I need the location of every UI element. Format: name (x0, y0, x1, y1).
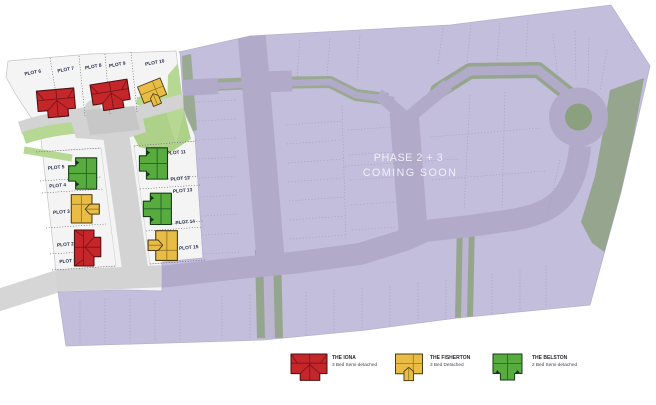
svg-text:3 Bed Detached: 3 Bed Detached (430, 362, 464, 367)
svg-text:PHASE 2 + 3: PHASE 2 + 3 (374, 152, 443, 164)
svg-text:THE IONA: THE IONA (332, 355, 356, 361)
svg-text:THE BELSTON: THE BELSTON (532, 355, 568, 361)
svg-text:3 Bed Semi-detached: 3 Bed Semi-detached (332, 362, 377, 367)
svg-text:COMING SOON: COMING SOON (363, 167, 458, 179)
svg-text:2 Bed Semi-detached: 2 Bed Semi-detached (532, 362, 577, 367)
svg-text:THE FISHERTON: THE FISHERTON (430, 355, 471, 361)
